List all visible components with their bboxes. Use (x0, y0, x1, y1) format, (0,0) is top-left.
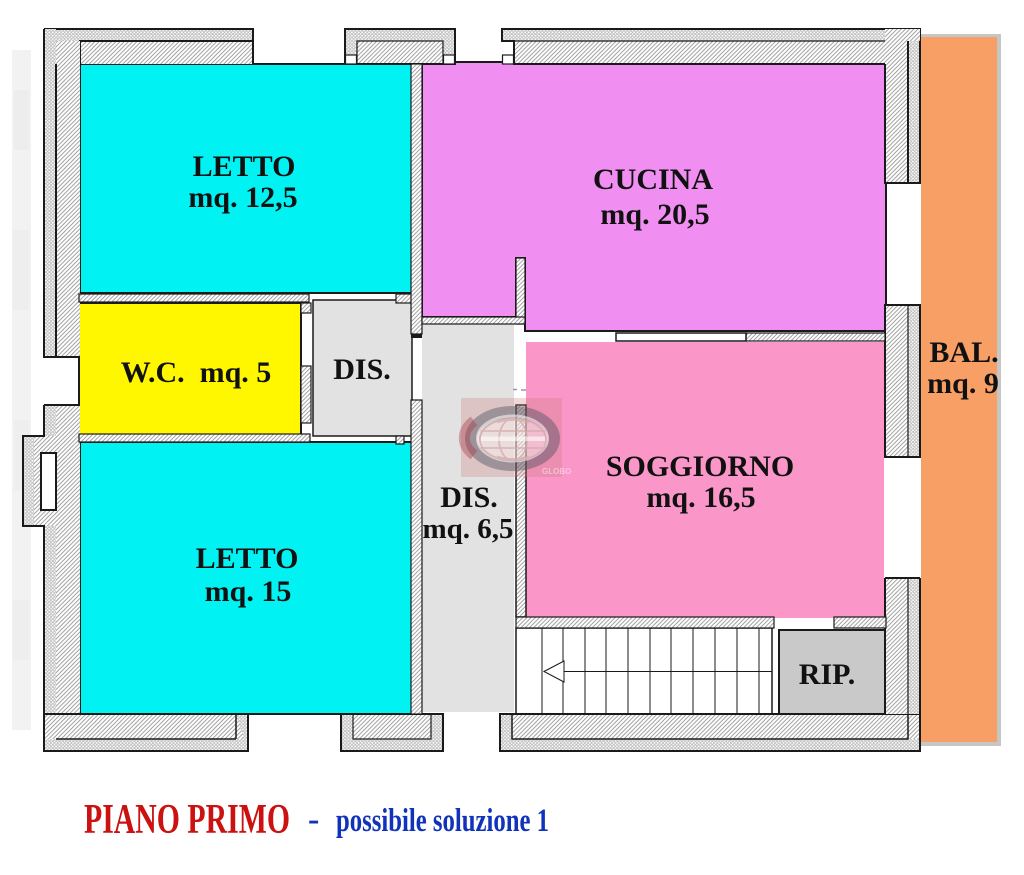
svg-text:BAL.: BAL. (929, 336, 998, 369)
svg-text:LETTO: LETTO (196, 542, 299, 575)
svg-text:LETTO: LETTO (193, 150, 296, 183)
svg-text:mq. 16,5: mq. 16,5 (646, 481, 755, 514)
svg-text:possibile soluzione 1: possibile soluzione 1 (336, 803, 549, 839)
svg-text:PIANO PRIMO: PIANO PRIMO (84, 797, 290, 843)
svg-text:RIP.: RIP. (799, 658, 855, 691)
svg-text:-: - (308, 801, 319, 838)
svg-text:DIS.: DIS. (333, 353, 391, 386)
svg-text:mq. 9: mq. 9 (927, 367, 999, 400)
svg-text:CUCINA: CUCINA (593, 163, 713, 196)
svg-text:mq. 20,5: mq. 20,5 (600, 198, 709, 231)
svg-text:W.C. mq. 5: W.C. mq. 5 (121, 356, 272, 389)
svg-text:GLOBO: GLOBO (542, 467, 571, 476)
svg-text:SOGGIORNO: SOGGIORNO (606, 450, 794, 483)
svg-text:mq. 15: mq. 15 (205, 575, 292, 608)
svg-text:DIS.: DIS. (440, 481, 498, 514)
svg-text:mq. 12,5: mq. 12,5 (188, 181, 297, 214)
svg-text:mq. 6,5: mq. 6,5 (422, 513, 513, 545)
